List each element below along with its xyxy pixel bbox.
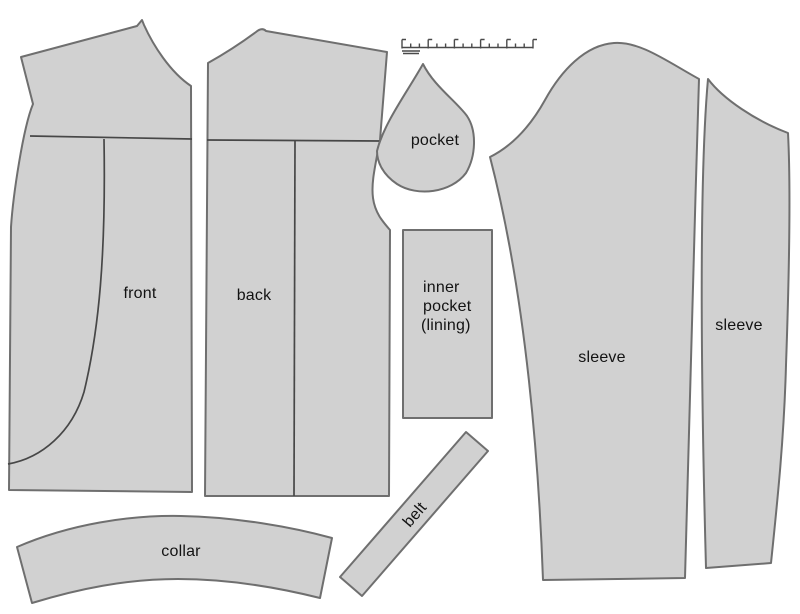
back-label: back <box>237 287 272 304</box>
pocket-piece-shape <box>377 64 474 192</box>
front-label: front <box>123 285 156 302</box>
scale-ruler-unit-bracket <box>402 51 420 54</box>
back-center-line <box>294 140 295 496</box>
collar-label: collar <box>161 543 201 560</box>
sewing-pattern-diagram: front back pocket inner pocket (lining) <box>0 0 800 614</box>
back-piece-shape <box>205 29 390 496</box>
under-sleeve-label: sleeve <box>715 317 762 334</box>
pattern-canvas: front back pocket inner pocket (lining) <box>0 0 800 614</box>
pocket-label: pocket <box>411 132 460 149</box>
upper-sleeve-piece-shape <box>490 43 699 580</box>
scale-ruler <box>402 40 537 54</box>
under-sleeve-piece: sleeve <box>702 79 790 568</box>
back-yoke-line <box>207 140 380 141</box>
back-piece: back <box>205 29 390 496</box>
upper-sleeve-piece: sleeve <box>490 43 699 580</box>
front-piece-shape <box>9 20 192 492</box>
pocket-piece: pocket <box>377 64 474 192</box>
upper-sleeve-label: sleeve <box>578 349 625 366</box>
collar-piece: collar <box>17 516 332 603</box>
front-piece: front <box>8 20 192 492</box>
inner-pocket-piece: inner pocket (lining) <box>403 230 492 418</box>
